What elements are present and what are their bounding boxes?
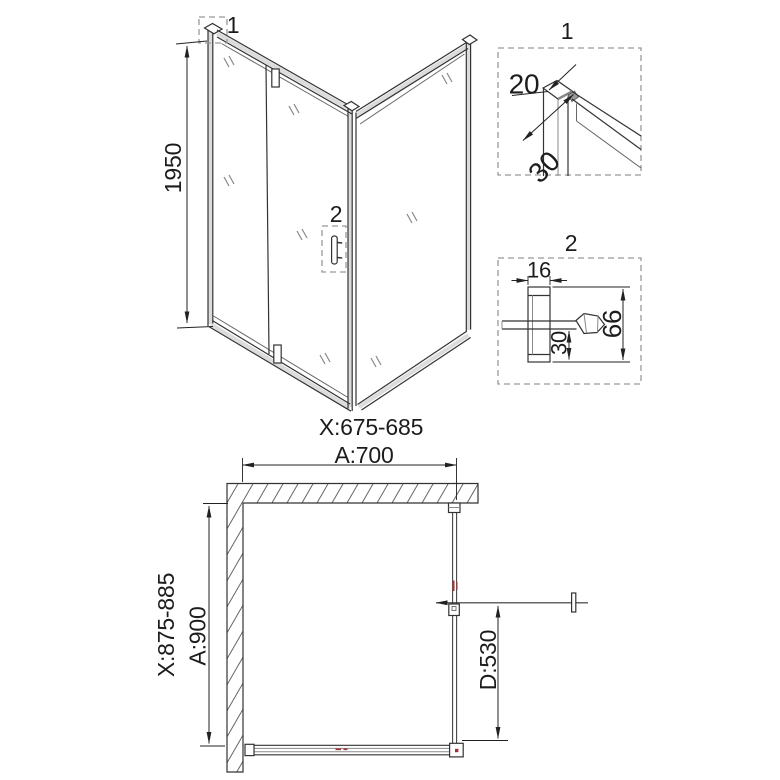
detail-1-title: 1 [561, 18, 574, 44]
detail-2-dim-16: 16 [527, 258, 551, 283]
door-divider-and-hinges [266, 66, 281, 364]
callout-label-2: 2 [330, 201, 343, 227]
front-glass-panel-plan [245, 743, 463, 757]
callout-label-1: 1 [227, 12, 240, 38]
dim-left-depth: X:875-885 A:900 [153, 504, 228, 747]
detail-2-dim-30: 30 [547, 331, 572, 355]
dim-height-text: 1950 [160, 143, 186, 193]
plan-view: A:700 X:875-885 A:900 D:530 [153, 442, 588, 772]
iso-width-range-text: X:675-685 [319, 414, 423, 440]
shower-enclosure-technical-drawing: 1 2 1950 X:675-685 1 [0, 0, 780, 780]
detail-view-1: 1 20 30 [498, 18, 641, 189]
dim-left-range-text: X:875-885 [153, 573, 179, 677]
dim-height-1950: 1950 [160, 41, 213, 328]
detail-1-dimensions: 20 30 [509, 65, 576, 189]
detail-1-dim-20: 20 [509, 69, 540, 100]
dim-door-width-text: D:530 [475, 630, 501, 690]
wall-hatched [227, 484, 478, 773]
door-handle [332, 236, 343, 264]
isometric-view: 1 2 1950 X:675-685 [160, 12, 477, 440]
handle-tick-plan [572, 593, 576, 612]
dim-left-depth-text: A:900 [185, 606, 211, 665]
door-open-plan [436, 593, 588, 616]
detail-1-dim-30: 30 [522, 145, 566, 189]
detail-2-title: 2 [565, 230, 578, 256]
red-dot [455, 749, 458, 752]
red-accents [336, 581, 458, 750]
drawing-canvas: 1 2 1950 X:675-685 1 [0, 0, 780, 780]
detail-2-dim-66: 66 [597, 310, 627, 339]
dim-top-width-text: A:700 [334, 442, 393, 468]
detail-1-border [498, 48, 641, 175]
dim-door-width: D:530 [462, 606, 508, 741]
detail-view-2: 2 16 66 30 [498, 230, 641, 384]
side-glass-panel-plan [449, 503, 461, 755]
